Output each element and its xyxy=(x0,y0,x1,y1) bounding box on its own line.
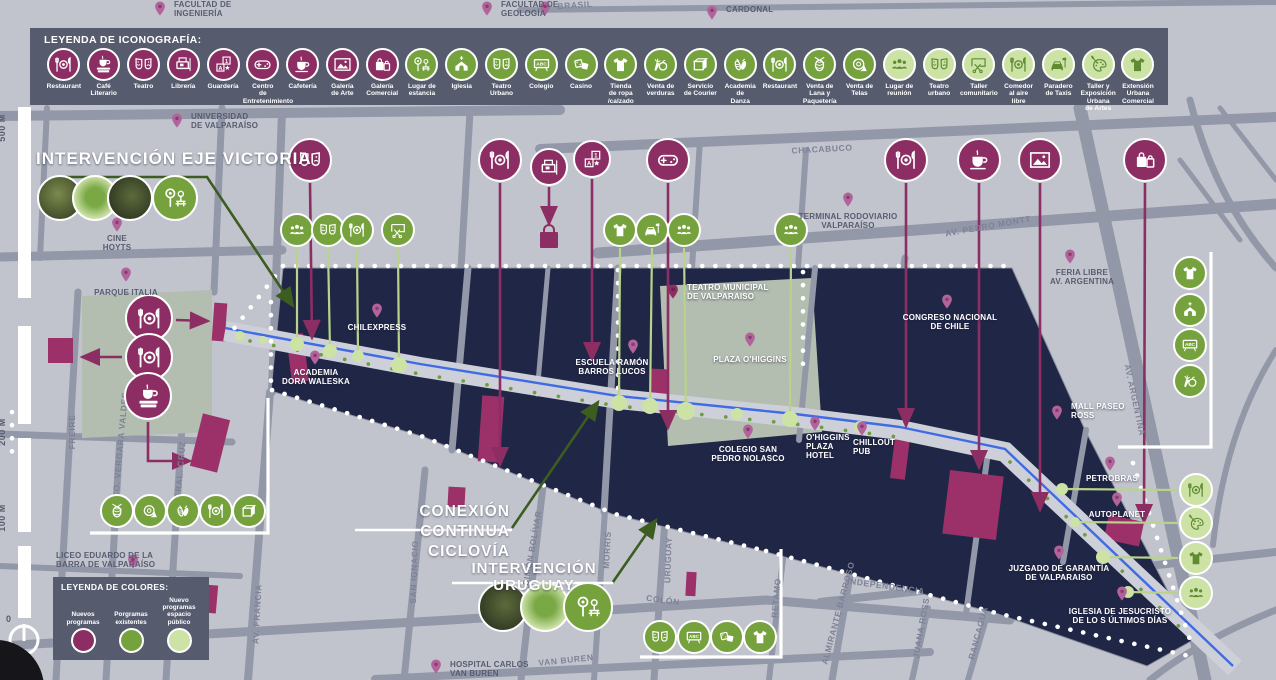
legend-item-label: Café Literario xyxy=(84,83,124,98)
legend-item-venta-de-lana-y-paqueter-a: Venta de Lana y Paquetería xyxy=(800,48,840,113)
street-label-freire: FREIRE xyxy=(67,415,77,450)
map-icon-tshirt-icon xyxy=(743,620,777,654)
guarderia-icon xyxy=(207,48,240,81)
legend-item-paradero-de-taxis: Paradero de Taxis xyxy=(1039,48,1079,113)
pin-label-colegio-san-pedro-nolasco: COLEGIO SAN PEDRO NOLASCO xyxy=(711,445,784,463)
map-icon-colegio-icon xyxy=(677,620,711,654)
iconography-legend: LEYENDA DE ICONOGRAFÍA: RestaurantCafé L… xyxy=(30,28,1168,105)
parque-icon xyxy=(405,48,438,81)
legend-item-centro-de-entretenimiento: Centro de Entretenimiento xyxy=(243,48,283,113)
legend-item-label: Galería Comercial xyxy=(362,83,402,98)
scale-label-100m: 100 M xyxy=(0,504,7,532)
galeria-arte-icon xyxy=(326,48,359,81)
map-icon-cafeteria-icon xyxy=(957,138,1001,182)
scale-label-500m: 500 M xyxy=(0,114,7,142)
map-icon-reunion-icon xyxy=(667,213,701,247)
map-icon-taxi-icon xyxy=(635,213,669,247)
map-icon-reunion-icon xyxy=(1179,576,1213,610)
map-icon-teatro-icon xyxy=(643,620,677,654)
reunion-icon xyxy=(883,48,916,81)
pin-label-cine-hoyts: CINE HOYTS xyxy=(103,234,132,252)
color-legend-item-nuevos-programas: Nuevos programas xyxy=(61,593,105,653)
map-icon-restaurant-icon xyxy=(884,138,928,182)
pin-label-mall-paseo-ross: MALL PASEO ROSS xyxy=(1071,402,1125,420)
pin-teatro-municipal-de-valparaiso xyxy=(665,281,681,307)
map-icon-restaurant-icon xyxy=(1179,473,1213,507)
color-legend-label: Nuevo programas espacio público xyxy=(162,597,195,626)
pin-label-facultad-de-ingenier-a: FACULTAD DE INGENIERÍA xyxy=(174,0,231,18)
taller-com-icon xyxy=(962,48,995,81)
color-legend-item-porgramas-existentes: Porgramas existentes xyxy=(109,593,153,653)
pin-label-universidad-de-valpara-so: UNIVERSIDAD DE VALPARAÍSO xyxy=(191,112,258,130)
map-icon-galeria-comercial-icon xyxy=(1123,138,1167,182)
legend-item-label: Teatro urbano xyxy=(919,83,959,98)
map-icon-taller-artes-icon xyxy=(1179,506,1213,540)
legend-item-galer-a-comercial: Galería Comercial xyxy=(362,48,402,113)
map-icon-taller-com-icon xyxy=(381,213,415,247)
street-label-uruguay: URUGUAY xyxy=(662,537,674,584)
color-legend-item-nuevo-programas-espacio-p-blico: Nuevo programas espacio público xyxy=(157,593,201,653)
legend-item-label: Cafetería xyxy=(283,83,323,90)
legend-item-restaurant: Restaurant xyxy=(44,48,84,113)
map-icon-parque-icon xyxy=(152,175,198,221)
color-legend-label: Porgramas existentes xyxy=(114,611,147,626)
pin-label-teatro-municipal-de-valparaiso: TEATRO MUNICIPAL DE VALPARAISO xyxy=(687,283,769,301)
pin-label-iglesia-de-jesucristo-de-lo-s-ltimos-d-as: IGLESIA DE JESUCRISTO DE LO S ÚLTIMOS DÍ… xyxy=(1069,607,1171,625)
legend-item-label: Lugar de estancia xyxy=(402,83,442,98)
lana-icon xyxy=(803,48,836,81)
pin-label-o-higgins-plaza-hotel: O'HIGGINS PLAZA HOTEL xyxy=(806,433,850,461)
legend-item-label: Extensión Urbana Comercial xyxy=(1118,83,1158,105)
map-icon-tshirt-icon xyxy=(1179,541,1213,575)
legend-item-iglesia: Iglesia xyxy=(442,48,482,113)
pin-label-chillout-pub: CHILLOUT PUB xyxy=(853,438,895,456)
map-icon-iglesia-icon xyxy=(1173,293,1207,327)
legend-item-lugar-de-estancia: Lugar de estancia xyxy=(402,48,442,113)
legend-item-label: Paradero de Taxis xyxy=(1039,83,1079,98)
pin-label-feria-libre-av-argentina: FERIA LIBRE AV. ARGENTINA xyxy=(1050,268,1114,286)
pin-universidad-de-valpara-so xyxy=(169,110,185,136)
scale-label-200m: 200 M xyxy=(0,418,7,446)
pin-label-cardonal: CARDONAL xyxy=(726,5,773,14)
teatro-icon xyxy=(923,48,956,81)
legend-item-label: Librería xyxy=(163,83,203,90)
cafeteria-icon xyxy=(286,48,319,81)
taxi-icon xyxy=(1042,48,1075,81)
galeria-comercial-icon xyxy=(366,48,399,81)
pin-label-petrobras: PETROBRAS xyxy=(1086,474,1138,483)
legend-item-extensi-n-urbana-comercial: Extensión Urbana Comercial xyxy=(1118,48,1158,113)
legend-item-tienda-de-ropa-calzado: Tienda de ropa /calzado xyxy=(601,48,641,113)
map-icon-cafe-lit-icon xyxy=(124,372,172,420)
pin-label-plaza-o-higgins: PLAZA O'HIGGINS xyxy=(713,355,787,364)
map-icon-reunion-icon xyxy=(280,213,314,247)
color-legend: LEYENDA DE COLORES: Nuevos programasPorg… xyxy=(53,577,209,660)
legend-item-label: Taller comunitario xyxy=(959,83,999,98)
legend-item-label: Tienda de ropa /calzado xyxy=(601,83,641,105)
libreria-icon xyxy=(167,48,200,81)
legend-item-venta-de-verduras: Venta de verduras xyxy=(641,48,681,113)
pin-colegio-san-pedro-nolasco xyxy=(740,421,756,447)
color-legend-label: Nuevos programas xyxy=(66,611,99,626)
pin-label-terminal-rodoviario-valpara-so: TERMINAL RODOVIARIO VALPARAÍSO xyxy=(799,212,898,230)
map-icon-tshirt-icon xyxy=(1173,256,1207,290)
legend-item-label: Casino xyxy=(561,83,601,90)
legend-item-label: Lugar de reunión xyxy=(879,83,919,98)
courier-icon xyxy=(684,48,717,81)
map-icon-colegio-icon xyxy=(1173,328,1207,362)
title-intervencion-uruguay: INTERVENCIÓN URUGUAY xyxy=(448,560,620,594)
title-conexion-ciclovia: CONEXIÓN CONTINUA CICLOVÍA xyxy=(348,502,510,562)
legend-item-teatro-urbano: Teatro urbano xyxy=(919,48,959,113)
color-swatch xyxy=(71,628,96,653)
legend-item-servicio-de-courier: Servicio de Courier xyxy=(681,48,721,113)
legend-item-label: Restaurant xyxy=(760,83,800,90)
pin-mall-paseo-ross xyxy=(1049,402,1065,428)
pin-facultad-de-ingenier-a xyxy=(152,0,168,24)
legend-item-label: Comedor al aire libre xyxy=(999,83,1039,105)
pin-label-autoplanet: AUTOPLANET xyxy=(1089,510,1146,519)
legend-item-lugar-de-reuni-n: Lugar de reunión xyxy=(879,48,919,113)
map-icon-gamepad-icon xyxy=(646,138,690,182)
map-icon-telas-icon xyxy=(133,494,167,528)
color-legend-items: Nuevos programasPorgramas existentesNuev… xyxy=(61,593,201,653)
legend-item-label: Iglesia xyxy=(442,83,482,90)
pin-label-liceo-eduardo-de-la-barra-de-valpara-so: LICEO EDUARDO DE LA BARRA DE VALPARAÍSO xyxy=(56,551,155,569)
legend-item-librer-a: Librería xyxy=(163,48,203,113)
iglesia-icon xyxy=(445,48,478,81)
color-swatch xyxy=(119,628,144,653)
title-conexion-line1: CONEXIÓN CONTINUA xyxy=(348,502,510,542)
map-icon-danza-icon xyxy=(166,494,200,528)
iconography-legend-title: LEYENDA DE ICONOGRAFÍA: xyxy=(44,34,1158,46)
map-icon-tshirt-icon xyxy=(603,213,637,247)
legend-item-guarder-a: Guardería xyxy=(203,48,243,113)
legend-item-label: Venta de verduras xyxy=(641,83,681,98)
legend-item-label: Centro de Entretenimiento xyxy=(243,83,283,105)
color-swatch xyxy=(167,628,192,653)
pin-label-hospital-carlos-van-buren: HOSPITAL CARLOS VAN BUREN xyxy=(450,660,529,678)
legend-item-label: Colegio xyxy=(521,83,561,90)
legend-item-colegio: Colegio xyxy=(521,48,561,113)
legend-item-label: Venta de Telas xyxy=(840,83,880,98)
legend-item-caf-literario: Café Literario xyxy=(84,48,124,113)
legend-item-cafeter-a: Cafetería xyxy=(283,48,323,113)
map-poster: 1 A xyxy=(0,0,1276,680)
cafe-lit-icon xyxy=(87,48,120,81)
title-intervencion-eje-victoria: INTERVENCIÓN EJE VICTORIA xyxy=(36,149,312,169)
legend-item-label: Servicio de Courier xyxy=(681,83,721,98)
pin-label-escuela-ram-n-barros-lucos: ESCUELA RAMÓN BARROS LUCOS xyxy=(576,358,649,376)
map-icon-casino-icon xyxy=(710,620,744,654)
map-icon-galeria-arte-icon xyxy=(1018,138,1062,182)
pin-facultad-de-geolog-a xyxy=(479,0,495,24)
taller-artes-icon xyxy=(1082,48,1115,81)
pin-hospital-carlos-van-buren xyxy=(428,656,444,680)
map-icon-restaurant-icon xyxy=(478,138,522,182)
map-icon-courier-icon xyxy=(232,494,266,528)
legend-item-casino: Casino xyxy=(561,48,601,113)
verduras-icon xyxy=(644,48,677,81)
teatro-icon xyxy=(485,48,518,81)
pin-label-parque-italia: PARQUE ITALIA xyxy=(94,288,158,297)
legend-item-teatro: Teatro xyxy=(124,48,164,113)
pin-parque-italia xyxy=(118,264,134,290)
map-icon-lana-icon xyxy=(100,494,134,528)
map-icon-verduras-icon xyxy=(1173,364,1207,398)
pin-label-academia-dora-waleska: ACADEMIA DORA WALESKA xyxy=(282,368,350,386)
pin-cardonal xyxy=(704,2,720,28)
legend-item-taller-comunitario: Taller comunitario xyxy=(959,48,999,113)
tshirt-icon xyxy=(1121,48,1154,81)
legend-item-taller-y-exposici-n-urbana-de-artes: Taller y Exposición Urbana de Artes xyxy=(1078,48,1118,113)
legend-item-label: Academia de Danza xyxy=(720,83,760,105)
casino-icon xyxy=(565,48,598,81)
legend-item-academia-de-danza: Academia de Danza xyxy=(720,48,760,113)
iconography-legend-items: RestaurantCafé LiterarioTeatroLibreríaGu… xyxy=(44,48,1158,113)
legend-item-label: Restaurant xyxy=(44,83,84,90)
pin-label-congreso-nacional-de-chile: CONGRESO NACIONAL DE CHILE xyxy=(903,313,998,331)
color-legend-title: LEYENDA DE COLORES: xyxy=(61,582,201,592)
legend-item-restaurant: Restaurant xyxy=(760,48,800,113)
restaurant-icon xyxy=(47,48,80,81)
legend-item-label: Guardería xyxy=(203,83,243,90)
legend-item-label: Venta de Lana y Paquetería xyxy=(800,83,840,105)
legend-item-label: Teatro Urbano xyxy=(482,83,522,98)
legend-item-label: Galería de Arte xyxy=(322,83,362,98)
legend-item-galer-a-de-arte: Galería de Arte xyxy=(322,48,362,113)
legend-item-teatro-urbano: Teatro Urbano xyxy=(482,48,522,113)
telas-icon xyxy=(843,48,876,81)
pin-label-juzgado-de-garant-a-de-valparaiso: JUZGADO DE GARANTÍA DE VALPARAISO xyxy=(1009,564,1110,582)
legend-item-label: Taller y Exposición Urbana de Artes xyxy=(1078,83,1118,113)
legend-item-label: Teatro xyxy=(124,83,164,90)
pin-label-facultad-de-geolog-a: FACULTAD DE GEOLOGÍA xyxy=(501,0,558,18)
legend-item-comedor-al-aire-libre: Comedor al aire libre xyxy=(999,48,1039,113)
scale-label-0: 0 xyxy=(6,614,12,624)
danza-icon xyxy=(724,48,757,81)
pin-plaza-o-higgins xyxy=(742,329,758,355)
legend-item-venta-de-telas: Venta de Telas xyxy=(840,48,880,113)
map-icon-guarderia-icon xyxy=(573,140,611,178)
map-icon-libreria-icon xyxy=(530,148,568,186)
map-icon-restaurant-icon xyxy=(340,213,374,247)
colegio-icon xyxy=(525,48,558,81)
pin-label-chilexpress: CHILEXPRESS xyxy=(348,323,407,332)
gamepad-icon xyxy=(246,48,279,81)
map-icon-photo3 xyxy=(107,175,153,221)
teatro-icon xyxy=(127,48,160,81)
tshirt-icon xyxy=(604,48,637,81)
restaurant-icon xyxy=(763,48,796,81)
pin-iglesia-de-jesucristo-de-lo-s-ltimos-d-as xyxy=(1114,583,1130,609)
map-icon-restaurant-icon xyxy=(199,494,233,528)
restaurant-icon xyxy=(1002,48,1035,81)
